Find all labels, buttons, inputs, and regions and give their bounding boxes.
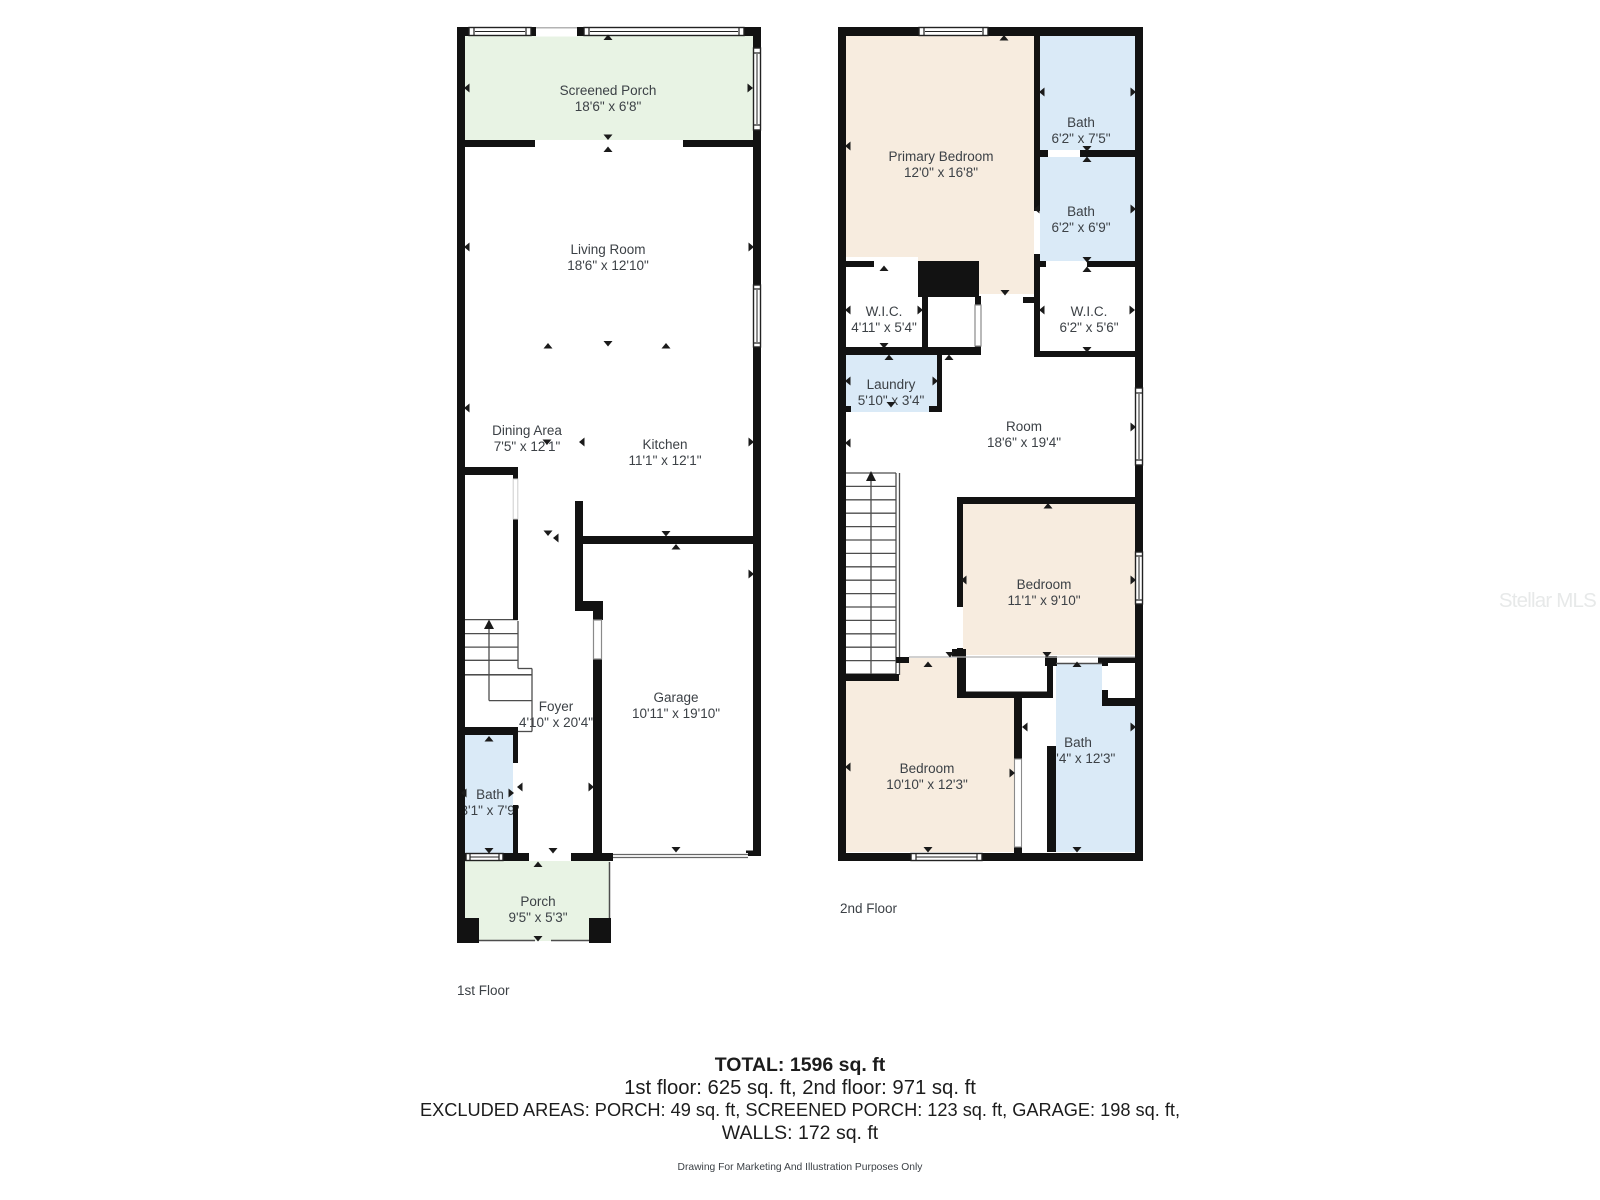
svg-text:Bath: Bath <box>1064 735 1092 750</box>
svg-text:Bath: Bath <box>1067 115 1095 130</box>
svg-text:Room: Room <box>1006 419 1042 434</box>
svg-text:Primary Bedroom: Primary Bedroom <box>888 149 993 164</box>
svg-text:7'5" x 12'1": 7'5" x 12'1" <box>494 439 561 454</box>
svg-text:Laundry: Laundry <box>867 377 916 392</box>
svg-text:W.I.C.: W.I.C. <box>866 304 903 319</box>
svg-text:EXCLUDED AREAS: PORCH: 49 sq.: EXCLUDED AREAS: PORCH: 49 sq. ft, SCREEN… <box>420 1100 1180 1120</box>
svg-text:Bath: Bath <box>476 787 504 802</box>
svg-text:12'0" x 16'8": 12'0" x 16'8" <box>904 165 978 180</box>
svg-text:Garage: Garage <box>653 690 698 705</box>
svg-text:6'2" x 5'6": 6'2" x 5'6" <box>1059 320 1118 335</box>
svg-text:WALLS: 172 sq. ft: WALLS: 172 sq. ft <box>722 1122 879 1144</box>
svg-text:Stellar MLS: Stellar MLS <box>1499 589 1596 612</box>
svg-text:10'10" x 12'3": 10'10" x 12'3" <box>886 777 968 792</box>
svg-text:4'11" x 5'4": 4'11" x 5'4" <box>851 320 917 335</box>
svg-text:Foyer: Foyer <box>539 699 574 714</box>
svg-text:Porch: Porch <box>520 894 555 909</box>
svg-text:1st Floor: 1st Floor <box>457 983 510 998</box>
svg-text:Kitchen: Kitchen <box>642 437 687 452</box>
svg-text:11'1" x 9'10": 11'1" x 9'10" <box>1007 593 1080 608</box>
svg-text:7'4" x 12'3": 7'4" x 12'3" <box>1049 751 1116 766</box>
svg-text:Bedroom: Bedroom <box>900 761 955 776</box>
svg-text:18'6" x 12'10": 18'6" x 12'10" <box>567 258 649 273</box>
svg-text:6'2" x 6'9": 6'2" x 6'9" <box>1051 220 1110 235</box>
svg-text:4'10" x 20'4": 4'10" x 20'4" <box>519 715 593 730</box>
svg-text:Dining Area: Dining Area <box>492 423 562 438</box>
svg-text:3'1" x 7'9": 3'1" x 7'9" <box>460 803 519 818</box>
svg-text:18'6" x 6'8": 18'6" x 6'8" <box>575 99 642 114</box>
svg-text:Screened Porch: Screened Porch <box>560 83 657 98</box>
svg-text:Bath: Bath <box>1067 204 1095 219</box>
svg-text:TOTAL: 1596 sq. ft: TOTAL: 1596 sq. ft <box>715 1054 886 1076</box>
svg-text:W.I.C.: W.I.C. <box>1071 304 1108 319</box>
svg-text:2nd Floor: 2nd Floor <box>840 901 898 916</box>
svg-text:Living Room: Living Room <box>570 242 645 257</box>
svg-text:Drawing For Marketing And Illu: Drawing For Marketing And Illustration P… <box>678 1162 924 1173</box>
svg-text:1st floor: 625 sq. ft, 2nd flo: 1st floor: 625 sq. ft, 2nd floor: 971 sq… <box>624 1077 976 1099</box>
svg-text:11'1" x 12'1": 11'1" x 12'1" <box>628 453 701 468</box>
svg-text:Bedroom: Bedroom <box>1017 577 1072 592</box>
svg-text:10'11" x 19'10": 10'11" x 19'10" <box>632 706 720 721</box>
svg-text:9'5" x 5'3": 9'5" x 5'3" <box>508 910 567 925</box>
svg-text:18'6" x 19'4": 18'6" x 19'4" <box>987 435 1061 450</box>
svg-text:6'2" x 7'5": 6'2" x 7'5" <box>1051 131 1110 146</box>
